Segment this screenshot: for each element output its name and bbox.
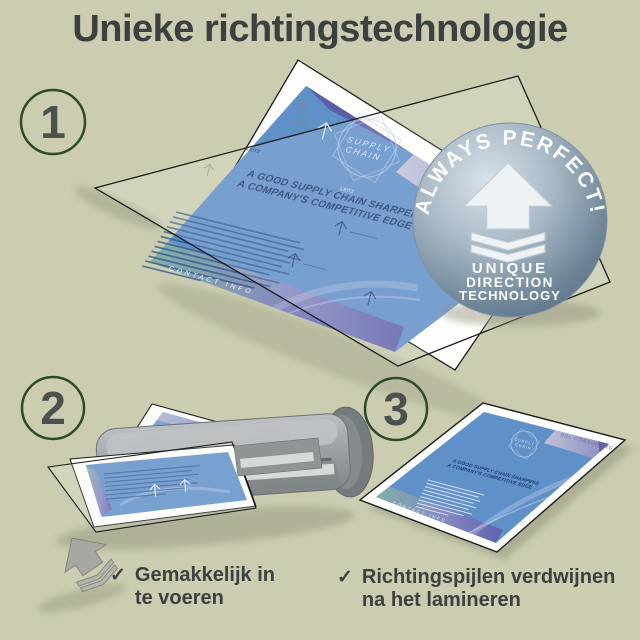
- caption-line: te voeren: [135, 587, 224, 609]
- caption-easy-feed: ✓ Gemakkelijk in te voeren: [110, 564, 275, 610]
- step-1-number: 1: [40, 96, 66, 148]
- step-1-marker: 1: [21, 90, 85, 154]
- caption-line: Gemakkelijk in: [135, 564, 275, 586]
- caption-easy-feed-text: Gemakkelijk in te voeren: [135, 564, 275, 610]
- illustration-canvas: BBL CONSULTING SUPPLY CHAIN A GOOD SUPPL…: [0, 0, 640, 640]
- caption-arrows-disappear: ✓ Richtingspijlen verdwijnen na het lami…: [337, 566, 615, 612]
- caption-line: na het lamineren: [362, 589, 521, 611]
- step-2-marker: 2: [22, 377, 84, 439]
- step-3-marker: 3: [365, 378, 427, 440]
- caption-line: Richtingspijlen verdwijnen: [362, 566, 615, 588]
- caption-arrows-disappear-text: Richtingspijlen verdwijnen na het lamine…: [362, 566, 615, 612]
- checkmark-icon: ✓: [337, 566, 353, 612]
- badge-label-3: TECHNOLOGY: [459, 288, 561, 303]
- step-3-number: 3: [383, 383, 409, 435]
- step-2-number: 2: [40, 382, 66, 434]
- laminating-pouch-infographic: Unieke richtingstechnologie: [0, 0, 640, 640]
- checkmark-icon: ✓: [110, 564, 126, 610]
